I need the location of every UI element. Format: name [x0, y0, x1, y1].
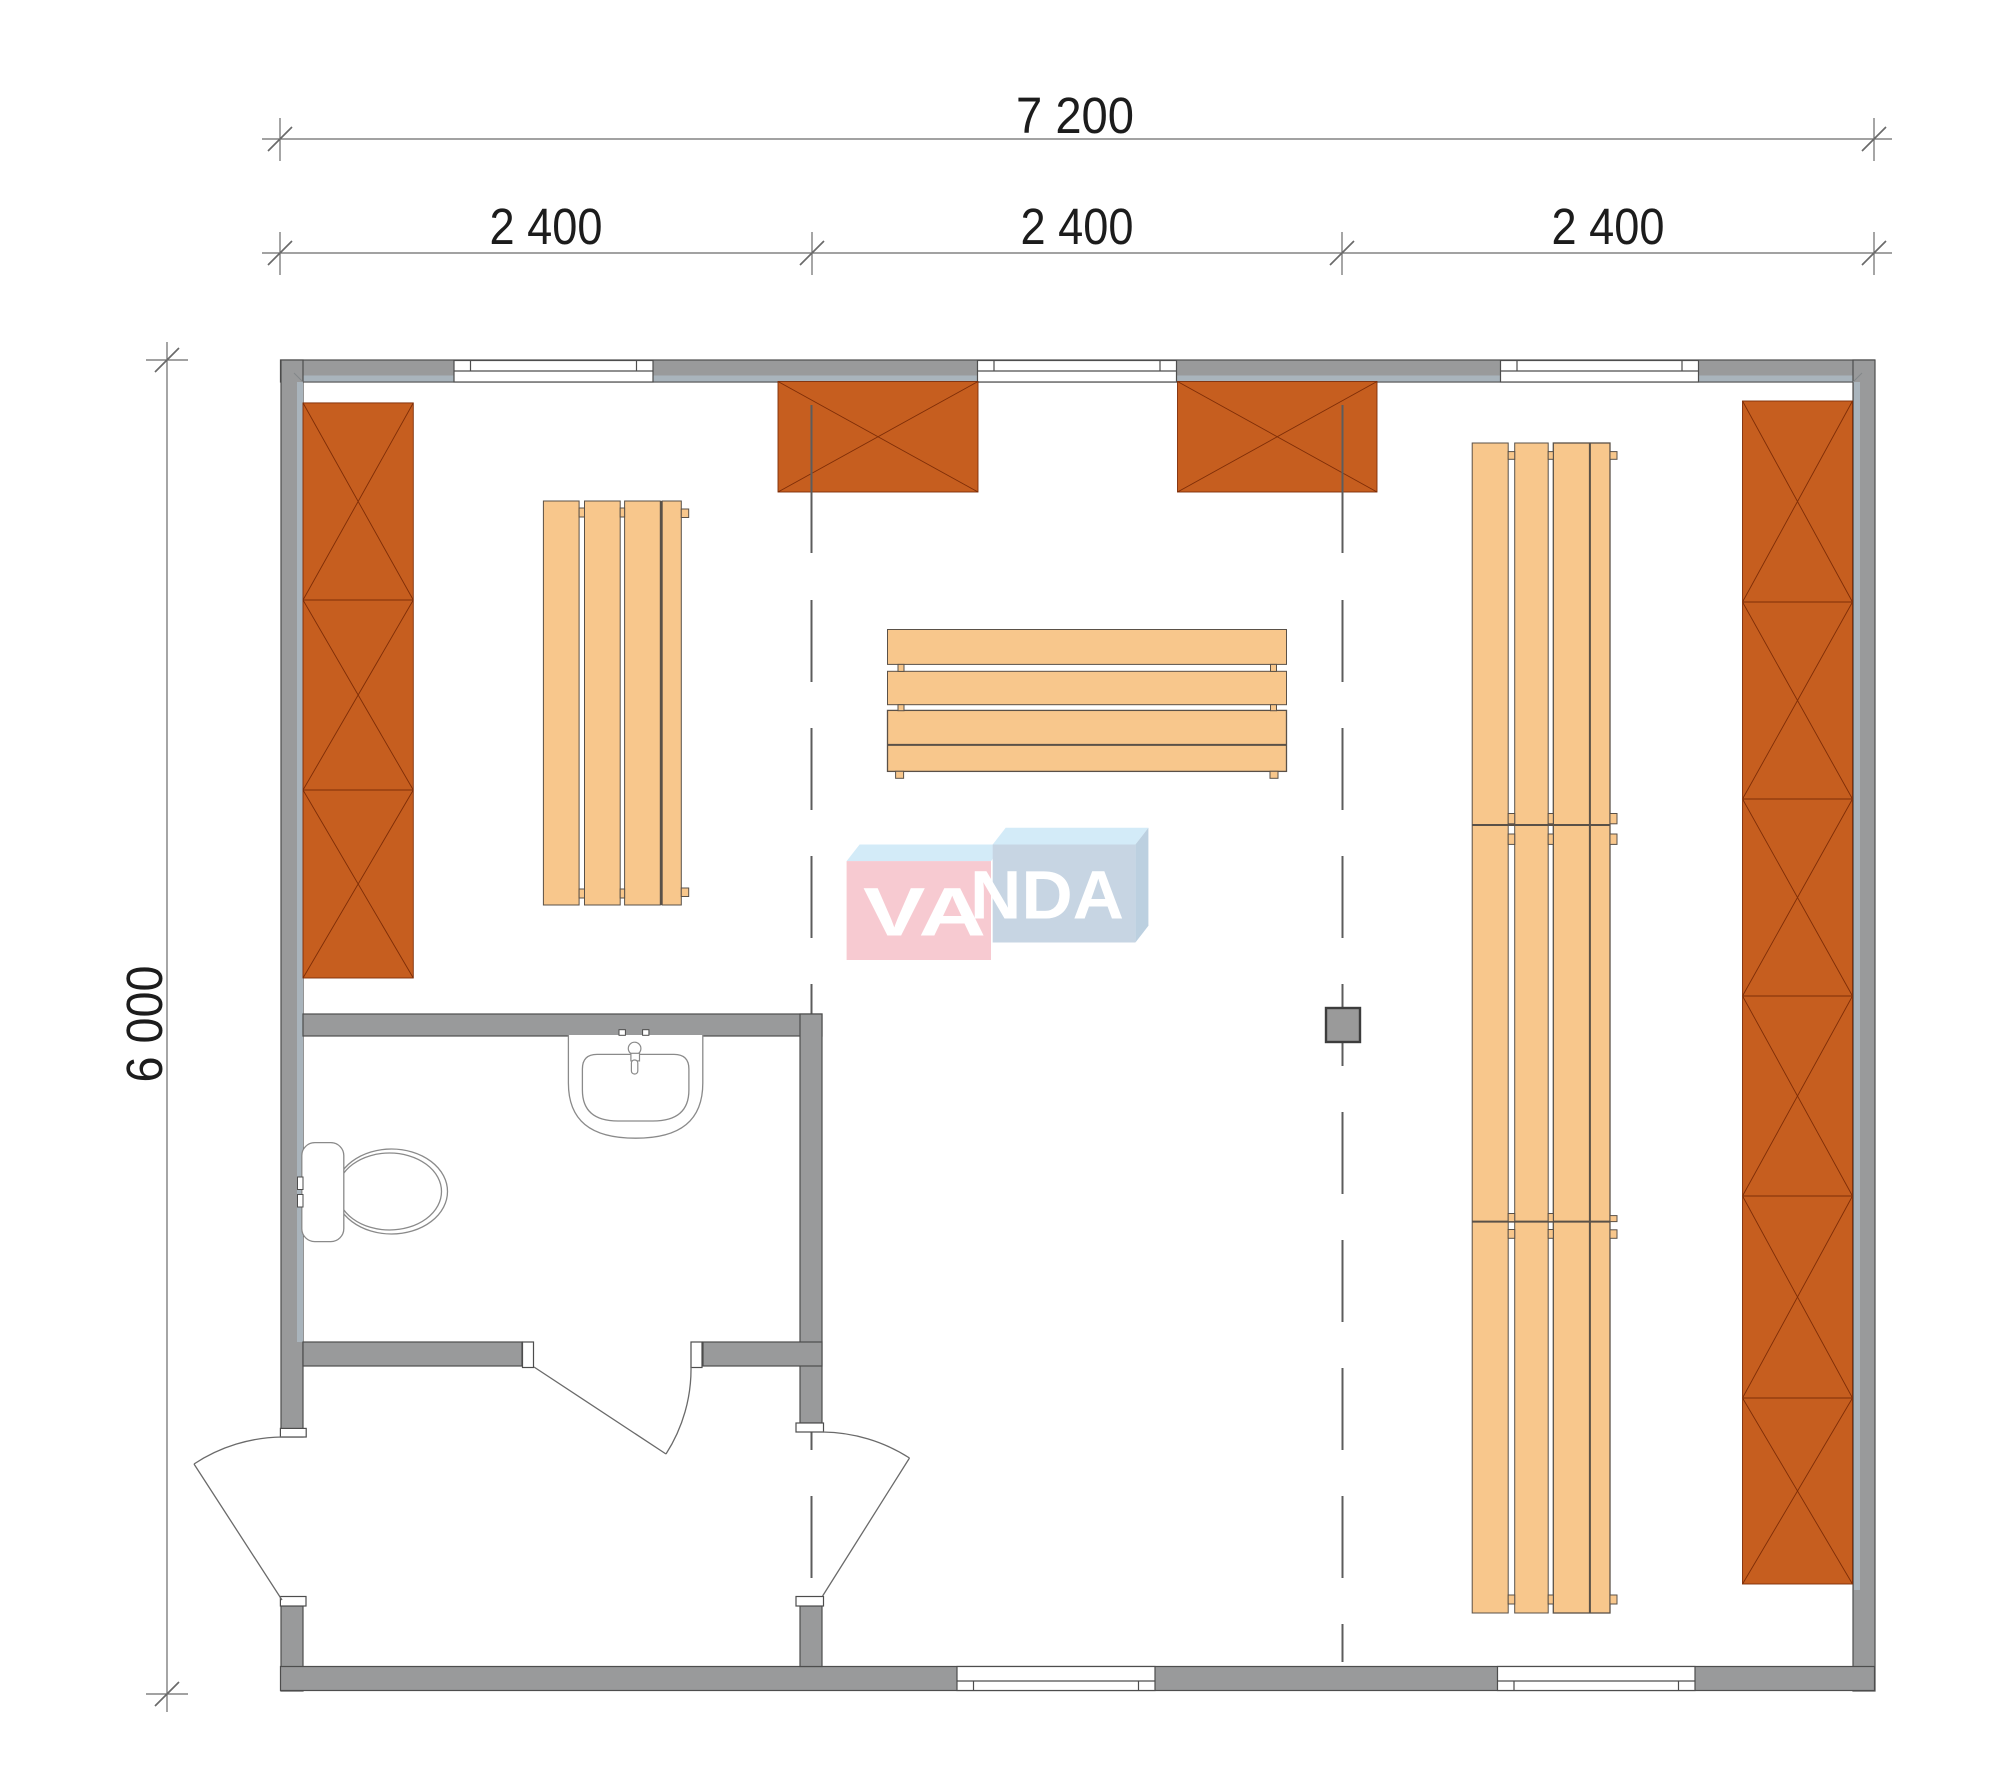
svg-text:6 000: 6 000: [116, 966, 173, 1083]
svg-text:2 400: 2 400: [1552, 198, 1665, 255]
svg-text:VA: VA: [863, 874, 986, 951]
svg-text:7 200: 7 200: [1016, 87, 1134, 144]
svg-text:NDA: NDA: [970, 857, 1124, 934]
svg-text:2 400: 2 400: [490, 198, 603, 255]
svg-text:2 400: 2 400: [1021, 198, 1134, 255]
